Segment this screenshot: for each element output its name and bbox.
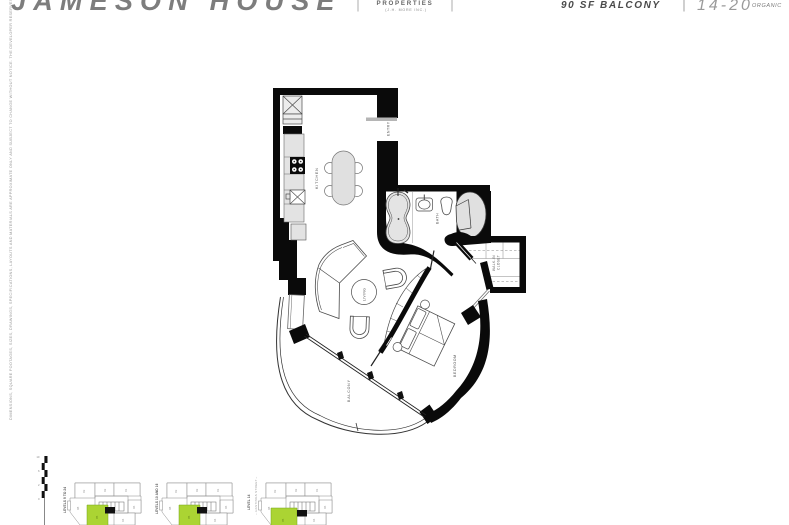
svg-text:CLOSET: CLOSET [497, 255, 501, 270]
svg-text:BATH: BATH [436, 213, 440, 224]
svg-text:BALCONY: BALCONY [347, 379, 351, 402]
svg-text:JAMESON HOUSE: JAMESON HOUSE [11, 0, 342, 16]
svg-text:(J.H. MORE INC.): (J.H. MORE INC.) [385, 8, 427, 12]
svg-text:ORGANIC: ORGANIC [752, 3, 782, 9]
svg-text:PROPERTIES: PROPERTIES [377, 0, 434, 7]
svg-text:LEVEL 14: LEVEL 14 [247, 494, 251, 510]
svg-text:WALK-IN: WALK-IN [492, 255, 496, 271]
svg-text:90 SF BALCONY: 90 SF BALCONY [561, 0, 661, 11]
svg-text:14-20: 14-20 [697, 0, 753, 14]
svg-text:LEVELS 9 TO 24: LEVELS 9 TO 24 [63, 487, 67, 513]
svg-text:LEVELS 10 AND 16: LEVELS 10 AND 16 [155, 483, 159, 514]
svg-text:KITCHEN: KITCHEN [315, 167, 319, 189]
svg-text:←HASTINGS STREET→: ←HASTINGS STREET→ [254, 476, 258, 515]
svg-text:LIVING: LIVING [363, 288, 367, 301]
svg-text:ENTRY: ENTRY [387, 121, 391, 136]
svg-text:BEDROOM: BEDROOM [453, 354, 457, 377]
svg-text:DIMENSIONS, SQUARE FOOTAGES, S: DIMENSIONS, SQUARE FOOTAGES, SIZES, DRAW… [9, 0, 13, 420]
svg-text:10: 10 [36, 455, 40, 459]
